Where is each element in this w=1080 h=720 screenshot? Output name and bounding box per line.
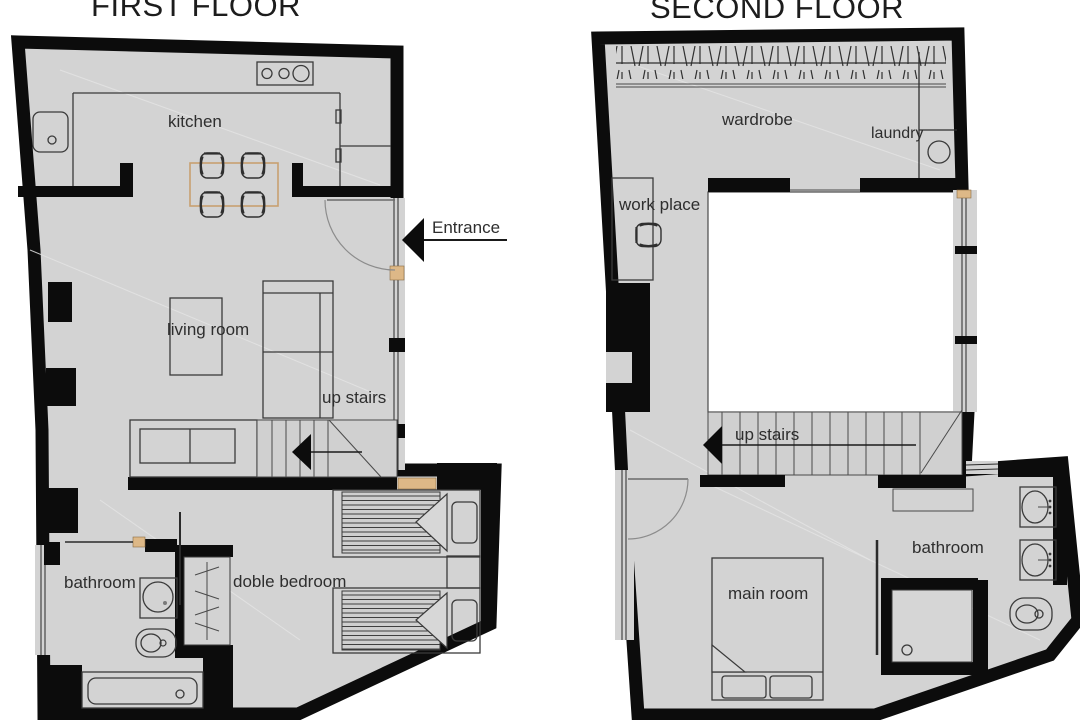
room-label-bathroom-ff: bathroom — [64, 573, 136, 592]
first-floor-title: FIRST FLOOR — [91, 0, 301, 23]
floor-plan-canvas: FIRST FLOOR — [0, 0, 1080, 720]
bedroom-threshold — [398, 478, 436, 489]
room-label-doble-bedroom: doble bedroom — [233, 572, 346, 591]
room-label-main-room: main room — [728, 584, 808, 603]
room-label-work-place: work place — [618, 195, 700, 214]
room-label-up-stairs-sf: up stairs — [735, 425, 799, 444]
second-floor-title: SECOND FLOOR — [650, 0, 904, 25]
bedroom-closet — [184, 557, 230, 645]
window-strip-left-sf — [615, 470, 634, 640]
window-strip-right-sf — [953, 190, 977, 412]
room-label-bathroom-sf: bathroom — [912, 538, 984, 557]
entrance-threshold — [390, 266, 404, 280]
left-wall-masses — [606, 283, 650, 412]
shower-icon — [881, 578, 988, 675]
first-floor-plan: FIRST FLOOR — [18, 0, 507, 714]
room-label-kitchen: kitchen — [168, 112, 222, 131]
room-label-living-room: living room — [167, 320, 249, 339]
window-bathroom-top — [966, 461, 998, 474]
room-label-entrance: Entrance — [432, 218, 500, 237]
room-label-wardrobe: wardrobe — [721, 110, 793, 129]
second-floor-plan: SECOND FLOOR wardrobe laundry — [598, 0, 1078, 715]
entrance-annotation: Entrance — [402, 218, 507, 262]
room-label-laundry: laundry — [871, 125, 923, 142]
entrance-arrow-icon — [402, 218, 424, 262]
room-label-up-stairs-ff: up stairs — [322, 388, 386, 407]
void-open-to-below — [708, 178, 962, 412]
